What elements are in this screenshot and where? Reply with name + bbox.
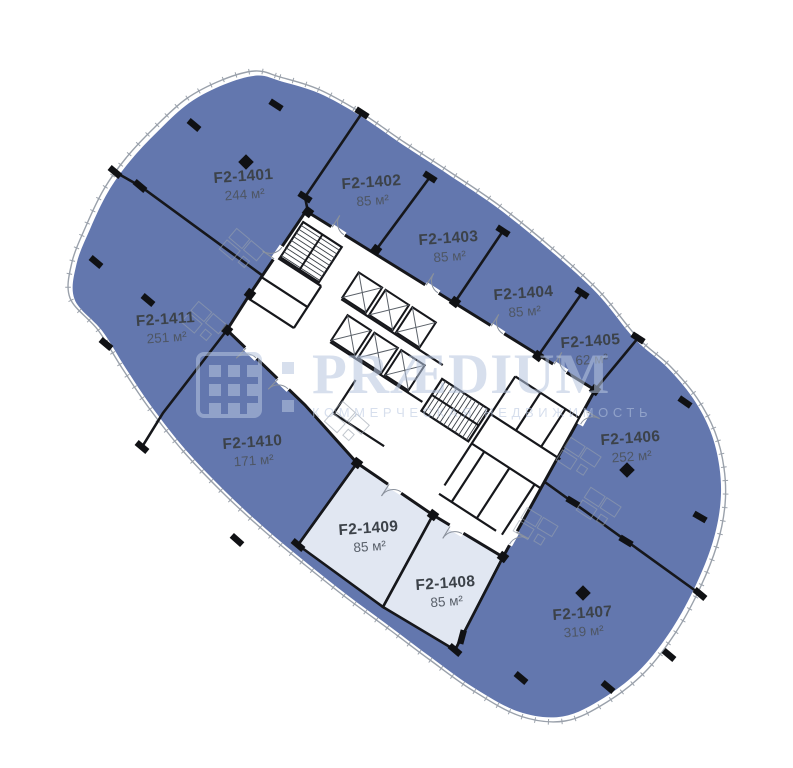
floorplan-canvas: F2-1401244 м²F2-140285 м²F2-140385 м²F2-… bbox=[0, 0, 793, 768]
floor-plan-svg bbox=[0, 0, 793, 768]
